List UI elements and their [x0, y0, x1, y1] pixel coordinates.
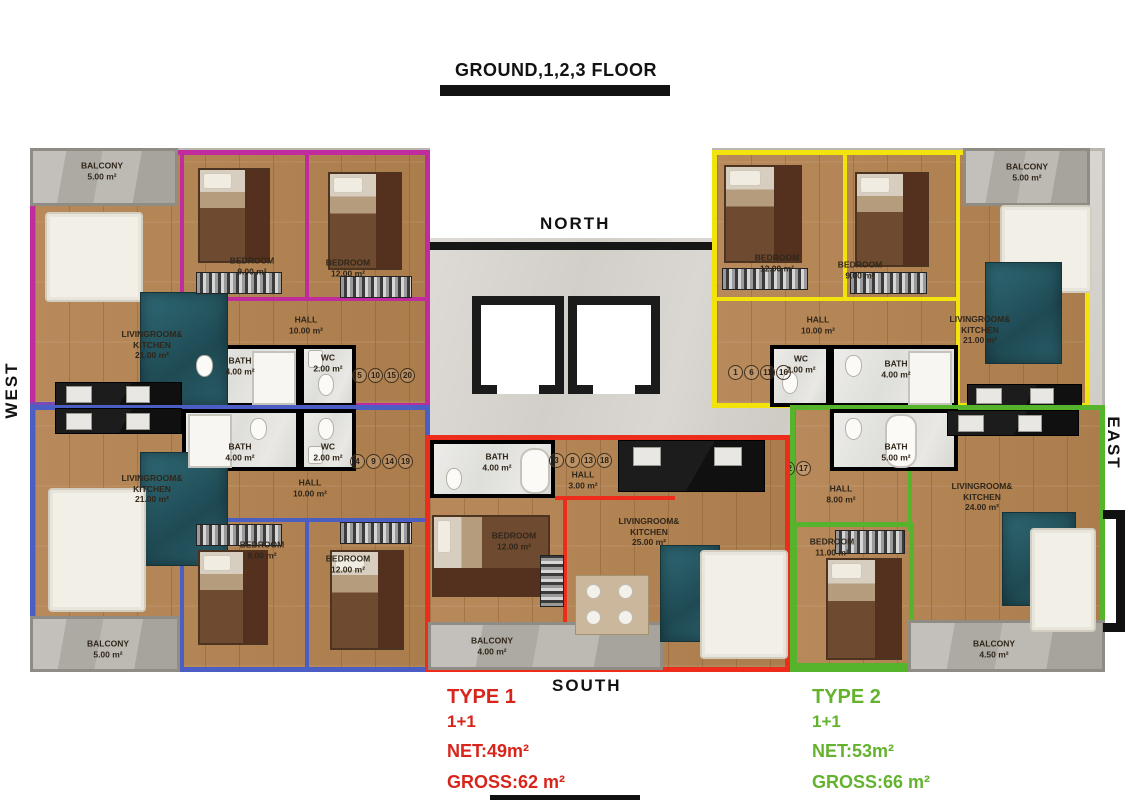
room-label-bedroom: BEDROOM9.00 m²: [817, 259, 903, 280]
compass-west: WEST: [2, 350, 22, 430]
elevator-door: [497, 385, 539, 394]
compass-north: NORTH: [540, 214, 610, 234]
stove: [66, 386, 92, 403]
dining-table: [575, 575, 649, 635]
terrace-bracket: [1103, 510, 1125, 632]
pillow: [860, 177, 890, 193]
rug: [140, 452, 228, 566]
room-label-hall: HALL10.00 m²: [267, 477, 353, 498]
room-label-wc: WC2.00 m²: [298, 352, 358, 373]
bed: [724, 165, 802, 263]
kitchen-counter: [947, 410, 1079, 436]
elevator-shaft-1: [472, 296, 564, 394]
room-label-bedroom: BEDROOM12.00 m²: [305, 553, 391, 574]
title-underline: [440, 85, 670, 96]
room-label-bedroom: BEDROOM12.00 m²: [734, 252, 820, 273]
rug: [985, 262, 1062, 364]
bed: [328, 172, 402, 270]
toilet: [845, 418, 862, 440]
unit-number-badge: 4: [350, 454, 365, 469]
unit-number-badge: 20: [400, 368, 415, 383]
type2-net: NET:53m²: [812, 741, 930, 762]
pillow: [831, 563, 862, 579]
bed: [432, 515, 550, 597]
type1-gross: GROSS:62 m²: [447, 772, 565, 793]
room-label-living: LIVINGROOM& KITCHEN24.00 m²: [942, 481, 1022, 513]
kitchen-counter: [55, 408, 182, 434]
wardrobe: [340, 522, 412, 544]
room-label-bath: BATH4.00 m²: [210, 355, 270, 376]
wall: [712, 297, 960, 301]
room-label-hall: HALL10.00 m²: [263, 314, 349, 335]
elevator-shaft-2: [568, 296, 660, 394]
unit-number-badge: 18: [597, 453, 612, 468]
unit-number-badge: 9: [366, 454, 381, 469]
unit-numbers-magenta: 5 10 15 20: [352, 368, 415, 383]
page-title: GROUND,1,2,3 FLOOR: [455, 60, 657, 81]
pillow: [333, 177, 363, 193]
room-label-living: LIVINGROOM& KITCHEN21.00 m²: [112, 473, 192, 505]
toilet: [318, 418, 334, 440]
room-label-balcony: BALCONY5.00 m²: [65, 638, 151, 659]
unit-number-badge: 19: [398, 454, 413, 469]
type2-gross: GROSS:66 m²: [812, 772, 930, 793]
bed: [198, 550, 268, 645]
type2-title: TYPE 2: [812, 686, 930, 709]
floor-plan-page: GROUND,1,2,3 FLOOR NORTH SOUTH WEST EAST…: [0, 0, 1135, 800]
sink: [633, 447, 661, 466]
stove: [66, 413, 92, 430]
bed: [198, 168, 270, 263]
sink: [126, 413, 150, 430]
unit-number-badge: 15: [384, 368, 399, 383]
room-label-hall: HALL10.00 m²: [775, 314, 861, 335]
unit-numbers-red: 3 8 13 18: [549, 453, 612, 468]
sink: [1030, 388, 1054, 404]
unit-number-badge: 16: [776, 365, 791, 380]
room-label-bath: BATH5.00 m²: [866, 441, 926, 462]
room-label-wc: WC2.00 m²: [298, 441, 358, 462]
blanket: [243, 551, 267, 643]
unit-number-badge: 3: [549, 453, 564, 468]
room-label-living: LIVINGROOM& KITCHEN25.00 m²: [609, 516, 689, 548]
unit-numbers-yellow: 1 6 11 16: [728, 365, 791, 380]
plate: [586, 584, 601, 599]
type1-plan: 1+1: [447, 712, 565, 732]
compass-east: EAST: [1103, 403, 1123, 483]
room-label-living: LIVINGROOM& KITCHEN21.00 m²: [112, 329, 192, 361]
south-scale-bar: [490, 795, 640, 800]
sofa: [45, 212, 143, 302]
blanket: [903, 173, 928, 265]
room-label-living: LIVINGROOM& KITCHEN21.00 m²: [940, 314, 1020, 346]
wardrobe: [340, 276, 412, 298]
unit-number-badge: 17: [796, 461, 811, 476]
kitchen-counter: [618, 440, 765, 492]
blanket: [245, 169, 269, 261]
room-label-bath: BATH4.00 m²: [210, 441, 270, 462]
room-label-balcony: BALCONY4.00 m²: [449, 635, 535, 656]
wardrobe: [540, 555, 564, 607]
pillow: [437, 520, 451, 553]
toilet: [250, 418, 267, 440]
wall: [555, 496, 675, 500]
room-label-bath: BATH4.00 m²: [866, 358, 926, 379]
kitchen-counter: [967, 384, 1082, 407]
room-label-bedroom: BEDROOM9.00 m²: [219, 539, 305, 560]
unit-number-badge: 10: [368, 368, 383, 383]
type2-plan: 1+1: [812, 712, 930, 732]
sink: [1018, 415, 1042, 432]
unit-number-badge: 6: [744, 365, 759, 380]
blanket: [774, 166, 801, 261]
toilet: [318, 374, 334, 396]
plate: [586, 610, 601, 625]
room-label-balcony: BALCONY5.00 m²: [984, 161, 1070, 182]
bed: [855, 172, 929, 267]
room-label-hall: HALL3.00 m²: [540, 469, 626, 490]
toilet: [845, 355, 862, 377]
elevator-door: [593, 385, 635, 394]
stove: [958, 415, 984, 432]
bed: [826, 558, 902, 660]
unit-number-badge: 8: [565, 453, 580, 468]
sofa: [48, 488, 146, 612]
sink: [126, 386, 150, 403]
blanket: [434, 568, 549, 596]
kitchen-counter: [55, 382, 182, 406]
room-label-bedroom: BEDROOM12.00 m²: [305, 257, 391, 278]
type1-net: NET:49m²: [447, 741, 565, 762]
unit-number-badge: 11: [760, 365, 775, 380]
room-label-balcony: BALCONY4.50 m²: [951, 638, 1037, 659]
unit-number-badge: 13: [581, 453, 596, 468]
toilet: [446, 468, 462, 490]
room-label-bath: BATH4.00 m²: [467, 451, 527, 472]
pillow: [729, 170, 761, 186]
plate: [618, 610, 633, 625]
legend-type1: TYPE 1 1+1 NET:49m² GROSS:62 m²: [447, 686, 565, 793]
room-label-hall: HALL8.00 m²: [798, 483, 884, 504]
unit-number-badge: 5: [352, 368, 367, 383]
stove: [714, 447, 742, 466]
blanket: [875, 559, 901, 658]
legend-type2: TYPE 2 1+1 NET:53m² GROSS:66 m²: [812, 686, 930, 793]
stove: [976, 388, 1002, 404]
sofa: [1030, 528, 1096, 632]
room-label-bedroom: BEDROOM12.00 m²: [471, 530, 557, 551]
blanket: [376, 173, 401, 268]
plate: [618, 584, 633, 599]
unit-number-badge: 1: [728, 365, 743, 380]
room-label-balcony: BALCONY5.00 m²: [59, 160, 145, 181]
room-label-bedroom: BEDROOM9.00 m²: [209, 255, 295, 276]
unit-number-badge: 14: [382, 454, 397, 469]
unit-numbers-blue: 4 9 14 19: [350, 454, 413, 469]
sofa: [700, 550, 788, 659]
room-label-bedroom: BEDROOM11.00 m²: [789, 536, 875, 557]
pillow: [203, 173, 232, 189]
type1-title: TYPE 1: [447, 686, 565, 709]
wall: [305, 520, 309, 672]
